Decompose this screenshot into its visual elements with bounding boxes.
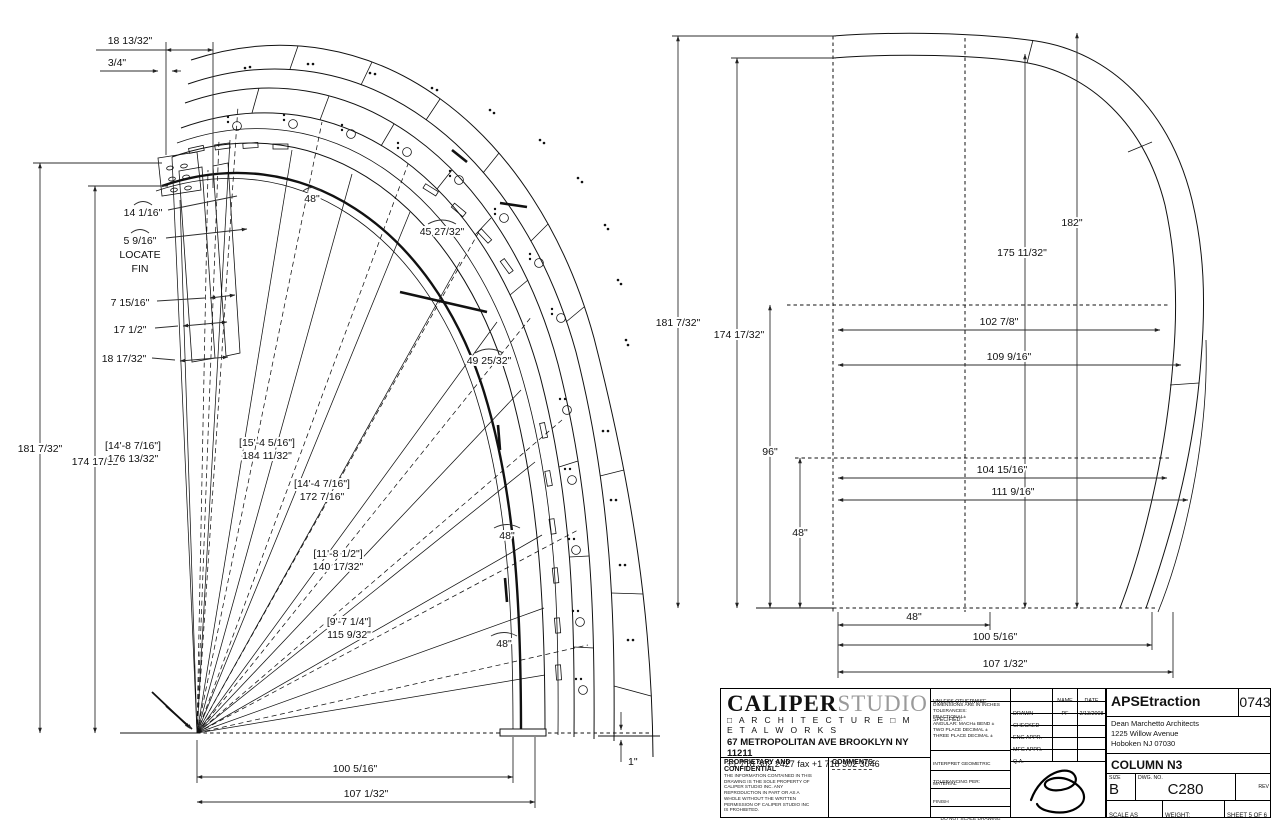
dim-18-13-32: 18 13/32" [108, 35, 153, 47]
radial-dimension-labels: [14'-8 7/16"] 176 13/32" [15'-4 5/16"] 1… [105, 437, 371, 641]
rev-label: REV [1258, 784, 1269, 790]
proprietary-block: PROPRIETARY AND CONFIDENTIAL THE INFORMA… [721, 758, 829, 817]
dwg-no-value: C280 [1138, 781, 1233, 798]
left-view-geometry [120, 45, 660, 757]
weight-cell: WEIGHT: [1162, 801, 1224, 817]
scale-cell: SCALE AS NOTED [1107, 801, 1162, 817]
project-title: APSEtraction [1111, 693, 1200, 709]
radial-label-bracket: [9'-7 1/4"] [327, 616, 371, 628]
signature-area [1011, 762, 1106, 817]
radial-label-value: 176 13/32" [108, 453, 159, 465]
locate-note-line1: LOCATE [119, 249, 160, 261]
rib-inner-arc [162, 173, 521, 733]
company-name-secondary: STUDIO [838, 691, 928, 716]
dim-48-horizontal: 48" [906, 611, 922, 623]
dwg-no-cell: DWG. NO. C280 [1135, 774, 1235, 801]
arc-label: 48" [499, 530, 515, 542]
sheet-cell: SHEET 5 OF 6 [1224, 801, 1271, 817]
dim-107-1-32: 107 1/32" [983, 658, 1028, 670]
size-cell: SIZE B [1107, 774, 1135, 801]
drawing-title: COLUMN N3 [1111, 758, 1182, 772]
arc-length-symbol [134, 202, 152, 206]
dim-109-9-16: 109 9/16" [987, 351, 1032, 363]
finish-label: FINISH [933, 800, 949, 805]
client-line: Hoboken NJ 07030 [1111, 739, 1267, 749]
company-address: 67 METROPOLITAN AVE BROOKLYN NY 11211 [727, 737, 924, 759]
arc-label: 49 25/32" [467, 355, 512, 367]
interpret-cell: INTERPRET GEOMETRIC TOLERANCING PER: [931, 751, 1011, 771]
proprietary-body: THE INFORMATION CONTAINED IN THIS DRAWIN… [724, 773, 814, 813]
dim-5-9-16: 5 9/16" [124, 235, 157, 247]
dim-100-5-16: 100 5/16" [973, 631, 1018, 643]
inner-profile [833, 55, 1176, 608]
radial-label-bracket: [14'-8 7/16"] [105, 440, 161, 452]
finish-cell: FINISH [931, 789, 1011, 807]
arc-label: 48" [496, 638, 512, 650]
hole-circles [227, 114, 588, 695]
client-line: Dean Marchetto Architects [1111, 719, 1267, 729]
material-cell: MATERIAL [931, 771, 1011, 789]
drawing-info-block: APSEtraction 0743 Dean Marchetto Archite… [1106, 689, 1270, 817]
radial-label-value: 184 11/32" [242, 450, 292, 462]
panel-dividers [1027, 40, 1199, 385]
fan-dashed-rays [197, 106, 588, 733]
outer-band-outer-arc [191, 45, 653, 757]
comments-block: COMMENTS: [829, 758, 931, 817]
dim-48-vertical: 48" [792, 527, 808, 539]
dim-104-15-16: 104 15/16" [977, 464, 1028, 476]
engineering-drawing-sheet: 18 13/32" 3/4" 14 1/16" 5 9/16" LOCATE F… [0, 0, 1271, 820]
project-title-cell: APSEtraction [1107, 689, 1238, 717]
arc-label: 45 27/32" [420, 226, 465, 238]
arc-label: 48" [304, 193, 320, 205]
company-tagline: □ A R C H I T E C T U R E □ M E T A L W … [727, 715, 924, 735]
scale-note: SCALE AS NOTED [1109, 813, 1138, 820]
approvals-block: NAME DATE DRAWN PF 2/13/2008 CHECKED ENG… [1011, 689, 1106, 817]
radial-label-value: 115 9/32" [327, 629, 371, 641]
spec-header-cell: UNLESS OTHERWISE SPECIFIED: [931, 689, 1011, 702]
radial-label-bracket: [11'-8 1/2"] [313, 548, 362, 560]
client-cell: Dean Marchetto Architects 1225 Willow Av… [1107, 717, 1271, 754]
dim-14-1-16: 14 1/16" [124, 207, 163, 219]
outer-band-dividers [290, 46, 651, 696]
comments-ruled-line [832, 768, 872, 770]
do-not-scale-cell: DO NOT SCALE DRAWING [931, 807, 1011, 817]
dim-102-7-8: 102 7/8" [980, 316, 1019, 328]
material-label: MATERIAL [933, 782, 957, 787]
outer-band-inner-arc [188, 69, 614, 741]
dim-107-1-32: 107 1/32" [344, 788, 389, 800]
dim-1-inch: 1" [628, 756, 638, 768]
hole-band-outer-arc [185, 88, 594, 739]
size-value: B [1109, 781, 1133, 798]
dim-18-17-32: 18 17/32" [102, 353, 147, 365]
dim-174-17-32: 174 17/32" [714, 329, 765, 341]
dim-17-1-2: 17 1/2" [114, 324, 147, 336]
radial-label-value: 140 17/32" [313, 561, 364, 573]
dim-100-5-16: 100 5/16" [333, 763, 378, 775]
dim-182: 182" [1061, 217, 1083, 229]
locate-note-line2: FIN [132, 263, 149, 275]
comments-label: COMMENTS: [832, 759, 927, 766]
dim-181-7-32: 181 7/32" [18, 443, 63, 455]
company-name-primary: CALIPER [727, 691, 838, 716]
bolt-dot-pairs-inner [227, 114, 582, 680]
dim-3-4: 3/4" [108, 57, 127, 69]
radial-label-bracket: [15'-4 5/16"] [239, 437, 295, 449]
client-line: 1225 Willow Avenue [1111, 729, 1267, 739]
spec-line: THREE PLACE DECIMAL ± [933, 734, 1008, 740]
base-foot-plate [500, 729, 546, 736]
title-block: CALIPERSTUDIO □ A R C H I T E C T U R E … [720, 688, 1271, 818]
hole-band-dividers [252, 88, 594, 648]
project-number: 0743 [1239, 694, 1270, 710]
drawing-title-cell: COLUMN N3 [1107, 754, 1271, 774]
radial-label-value: 172 7/16" [300, 491, 345, 503]
project-number-cell: 0743 [1238, 689, 1271, 717]
tolerance-cell: DIMENSIONS ARE IN INCHES TOLERANCES: FRA… [931, 702, 1011, 751]
signature-mark [1011, 762, 1106, 817]
sheet-number: SHEET 5 OF 6 [1227, 813, 1267, 819]
dim-111-9-16: 111 9/16" [991, 486, 1034, 498]
fin-plate-2 [213, 163, 240, 356]
dim-7-15-16: 7 15/16" [111, 297, 150, 309]
dim-181-7-32: 181 7/32" [656, 317, 701, 329]
right-view-dimensions: 181 7/32" 174 17/32" 96" 48" 175 11/32" … [656, 33, 1188, 678]
proprietary-title: PROPRIETARY AND CONFIDENTIAL [724, 759, 825, 773]
arc-length-symbol [131, 230, 149, 234]
weight-label: WEIGHT: [1165, 813, 1190, 819]
company-logo-block: CALIPERSTUDIO □ A R C H I T E C T U R E … [721, 689, 931, 758]
fan-solid-rays [172, 140, 545, 733]
dim-175-11-32: 175 11/32" [997, 247, 1047, 259]
fan-origin-arrows [152, 692, 192, 729]
radial-label-bracket: [14'-4 7/16"] [294, 478, 350, 490]
rev-cell: REV [1235, 774, 1271, 801]
dim-96: 96" [762, 446, 778, 458]
